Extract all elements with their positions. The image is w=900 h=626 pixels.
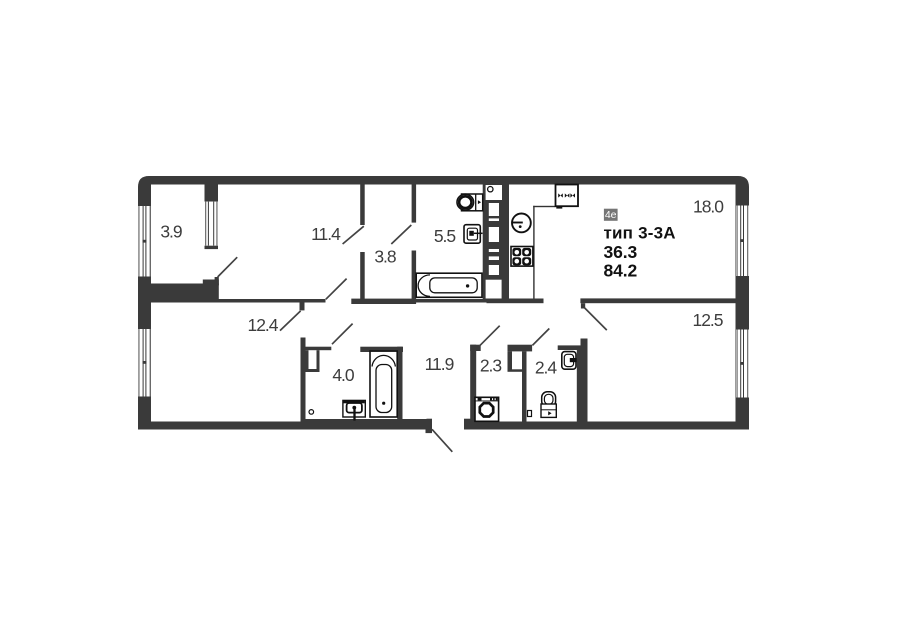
svg-text:2.4: 2.4 xyxy=(535,357,558,377)
svg-text:5.5: 5.5 xyxy=(434,226,456,246)
svg-text:2.3: 2.3 xyxy=(480,355,502,375)
svg-text:84.2: 84.2 xyxy=(604,261,638,281)
svg-text:11.9: 11.9 xyxy=(425,354,454,374)
svg-text:36.3: 36.3 xyxy=(604,242,638,262)
svg-text:3.8: 3.8 xyxy=(374,246,396,266)
svg-text:4.0: 4.0 xyxy=(332,365,355,385)
svg-text:тип 3-3А: тип 3-3А xyxy=(604,224,676,243)
svg-text:12.4: 12.4 xyxy=(247,315,278,335)
svg-text:11.4: 11.4 xyxy=(311,224,341,244)
svg-text:18.0: 18.0 xyxy=(693,197,724,217)
svg-text:12.5: 12.5 xyxy=(692,310,722,330)
svg-text:3.9: 3.9 xyxy=(160,221,182,241)
svg-text:4e: 4e xyxy=(605,209,617,221)
